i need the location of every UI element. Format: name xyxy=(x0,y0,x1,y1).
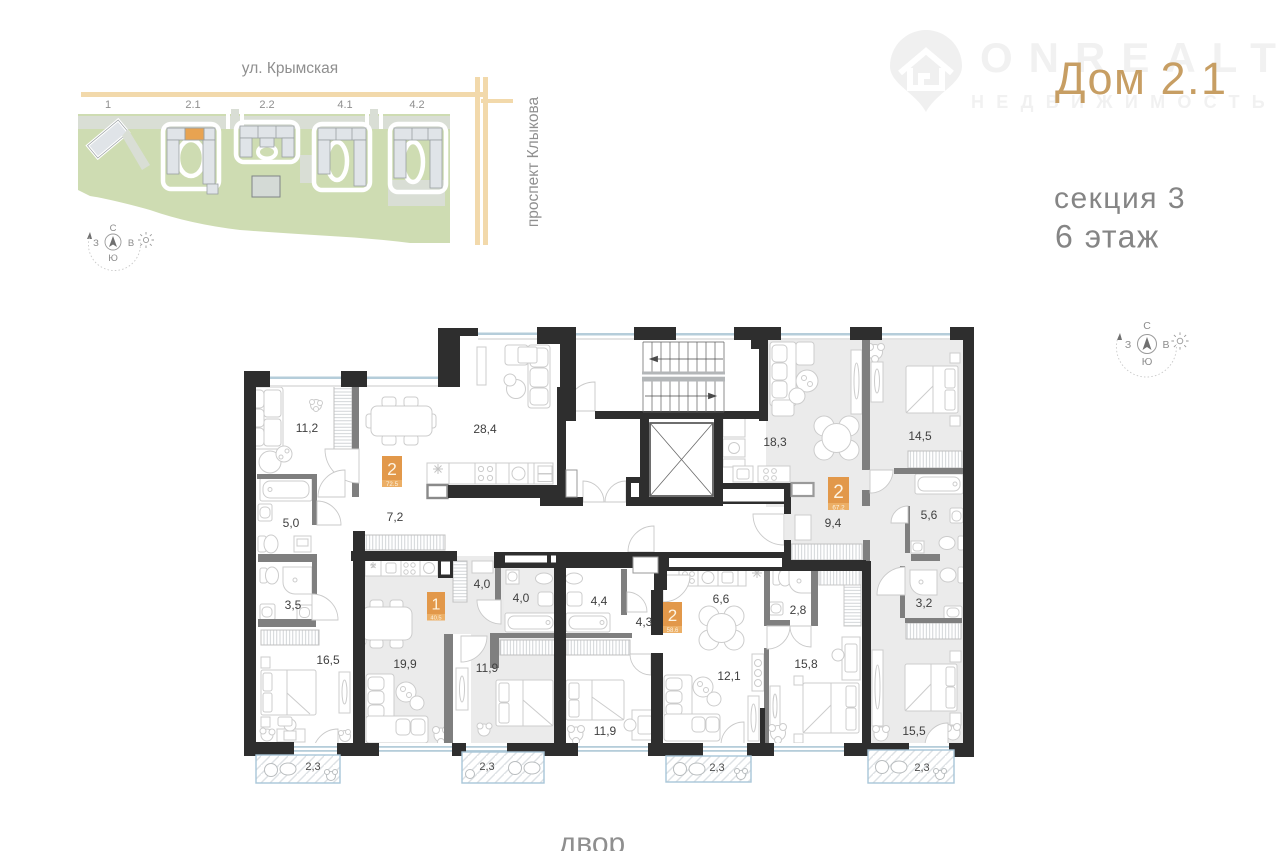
svg-text:3,2: 3,2 xyxy=(916,596,933,610)
svg-text:6,6: 6,6 xyxy=(713,592,730,606)
svg-text:2,3: 2,3 xyxy=(305,761,320,773)
svg-text:З: З xyxy=(93,238,99,249)
svg-text:4,0: 4,0 xyxy=(474,577,491,591)
svg-text:4.1: 4.1 xyxy=(337,99,352,111)
svg-text:С: С xyxy=(1143,320,1151,332)
svg-text:ул. Крымская: ул. Крымская xyxy=(242,60,338,77)
svg-text:18,3: 18,3 xyxy=(763,435,787,449)
svg-text:З: З xyxy=(1125,339,1131,351)
svg-text:1: 1 xyxy=(432,597,441,614)
svg-text:2.1: 2.1 xyxy=(185,99,200,111)
svg-text:2: 2 xyxy=(668,606,677,625)
svg-text:9,4: 9,4 xyxy=(825,516,842,530)
svg-text:11,2: 11,2 xyxy=(296,421,319,435)
svg-text:двор: двор xyxy=(559,827,625,851)
svg-text:2,3: 2,3 xyxy=(709,762,724,774)
svg-text:28,4: 28,4 xyxy=(473,422,497,436)
svg-text:3,5: 3,5 xyxy=(285,598,302,612)
svg-text:Ю: Ю xyxy=(1142,356,1153,368)
svg-text:4,0: 4,0 xyxy=(513,591,530,605)
svg-text:14,5: 14,5 xyxy=(908,429,932,443)
svg-text:2: 2 xyxy=(387,459,397,479)
svg-text:58.6: 58.6 xyxy=(667,628,679,634)
svg-text:4.2: 4.2 xyxy=(409,99,424,111)
svg-text:11,9: 11,9 xyxy=(594,724,617,738)
svg-text:19,9: 19,9 xyxy=(393,657,417,671)
svg-text:2,3: 2,3 xyxy=(914,762,929,774)
svg-text:В: В xyxy=(128,238,134,249)
svg-text:Дом 2.1: Дом 2.1 xyxy=(1055,53,1228,104)
svg-text:15,8: 15,8 xyxy=(794,657,818,671)
svg-text:40.5: 40.5 xyxy=(430,616,441,622)
svg-text:15,5: 15,5 xyxy=(902,724,926,738)
svg-text:4,4: 4,4 xyxy=(591,594,608,608)
svg-text:67.2: 67.2 xyxy=(832,504,845,511)
svg-text:2.2: 2.2 xyxy=(259,99,274,111)
svg-text:4,3: 4,3 xyxy=(636,615,653,629)
svg-text:2: 2 xyxy=(833,482,844,503)
svg-text:проспект Клыкова: проспект Клыкова xyxy=(525,97,542,228)
svg-text:16,5: 16,5 xyxy=(316,653,340,667)
svg-text:Ю: Ю xyxy=(108,253,118,264)
svg-text:С: С xyxy=(110,223,117,234)
svg-text:5,0: 5,0 xyxy=(283,516,300,530)
svg-text:2,8: 2,8 xyxy=(790,603,807,617)
svg-text:секция 3: секция 3 xyxy=(1054,182,1186,215)
svg-text:1: 1 xyxy=(105,99,111,111)
svg-text:5,6: 5,6 xyxy=(921,508,938,522)
svg-text:6 этаж: 6 этаж xyxy=(1055,219,1160,255)
svg-text:72.5: 72.5 xyxy=(386,481,399,488)
svg-text:11,9: 11,9 xyxy=(476,661,499,675)
svg-text:7,2: 7,2 xyxy=(387,510,404,524)
svg-text:В: В xyxy=(1162,339,1169,351)
svg-text:12,1: 12,1 xyxy=(717,669,741,683)
svg-text:2,3: 2,3 xyxy=(479,761,494,773)
